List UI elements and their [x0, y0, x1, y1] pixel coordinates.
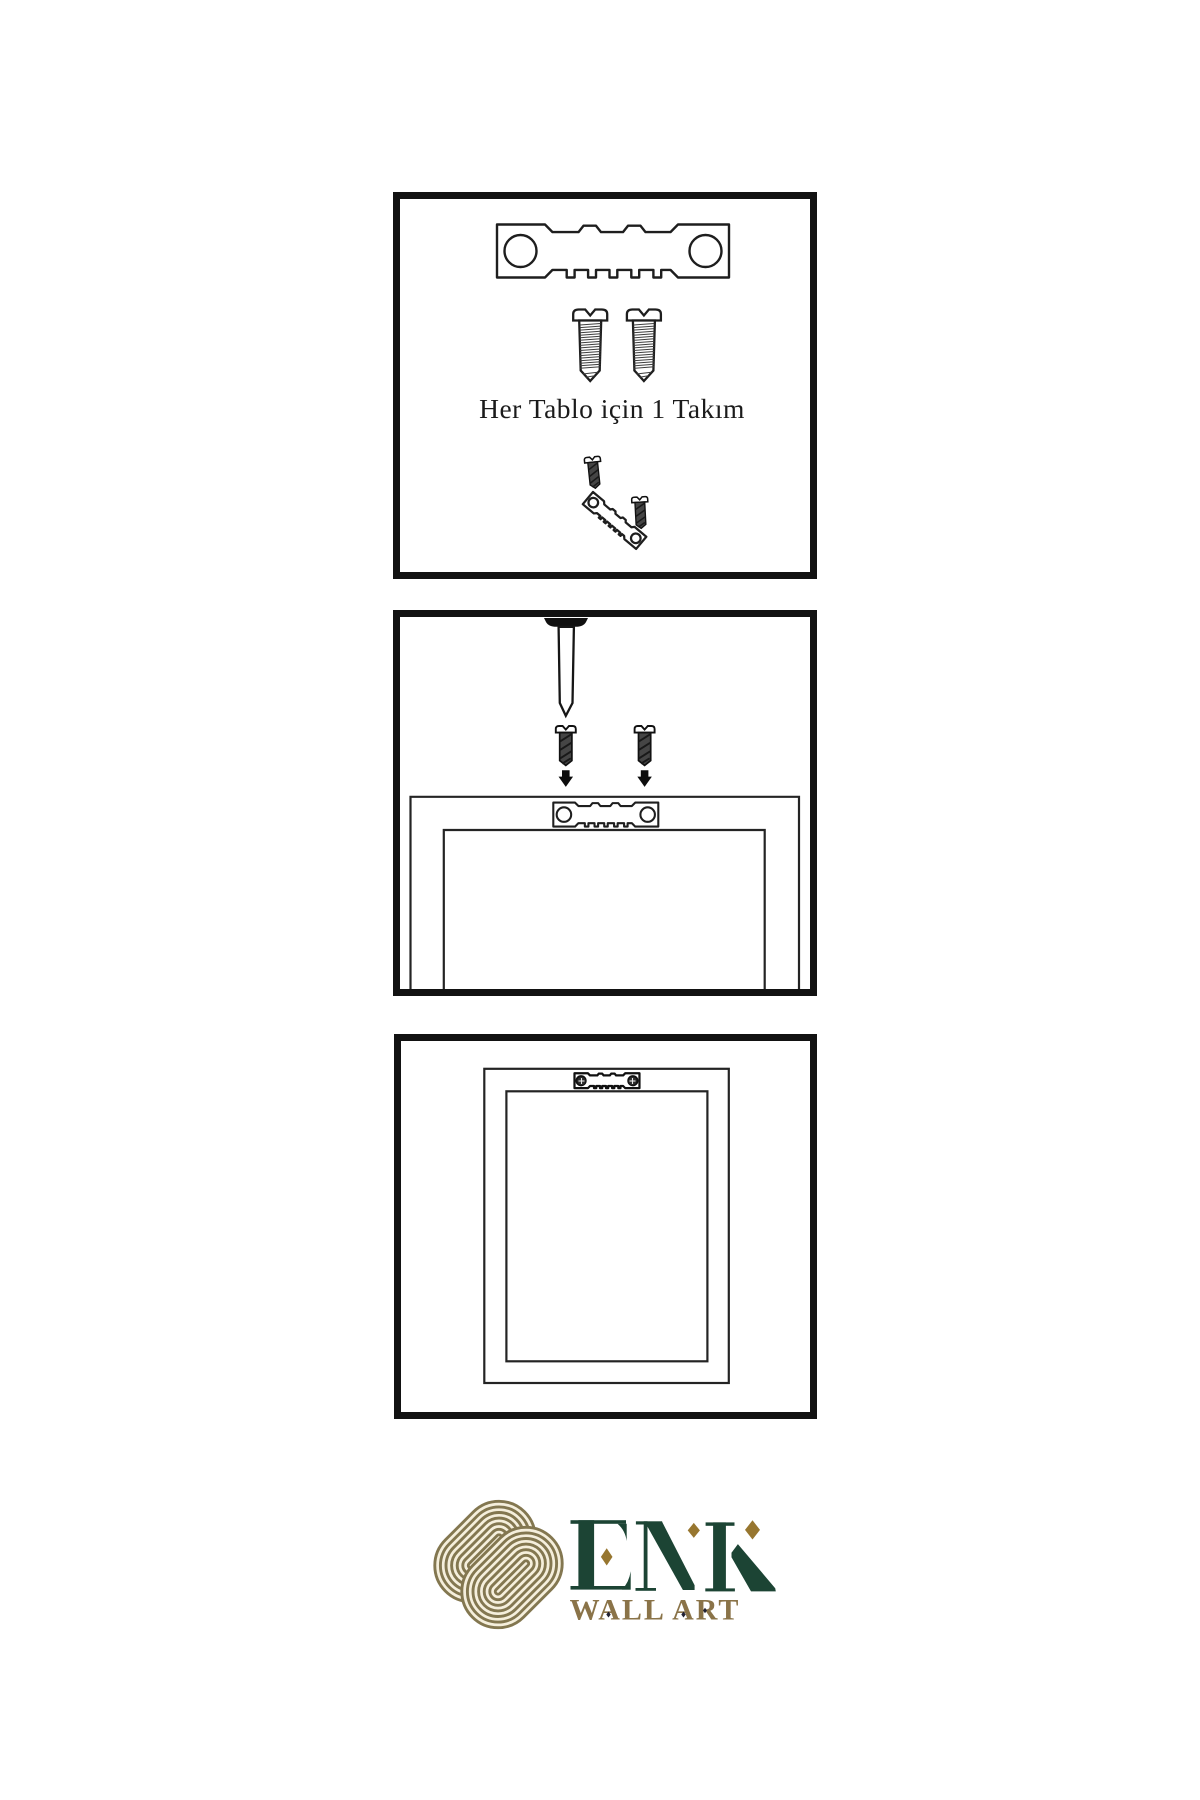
- svg-text:WALL ART: WALL ART: [570, 1594, 741, 1627]
- svg-text:Her Tablo için 1 Takım: Her Tablo için 1 Takım: [479, 393, 745, 424]
